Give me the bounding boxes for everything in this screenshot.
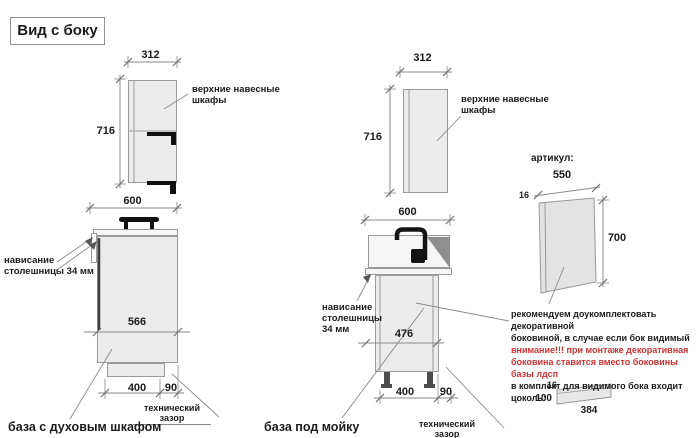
recommendation-text: рекомендуем доукомплектовать декоративно…	[511, 308, 700, 404]
decorative-side-panel	[539, 198, 596, 293]
oven-handle	[119, 217, 159, 229]
dim-depth-sink: 476	[379, 328, 429, 340]
dim-plinth-left: 400	[112, 382, 162, 394]
dim-panel-thickness: 16	[519, 190, 529, 200]
recommendation-line: боковиной, в случае если бок видимый	[511, 332, 700, 344]
dim-panel-width: 550	[542, 169, 582, 181]
dim-gap-mid: 90	[432, 386, 460, 398]
dim-base-width-mid: 600	[383, 206, 432, 218]
dim-depth-oven: 566	[112, 316, 162, 328]
tech-gap-label-right: технический зазор	[408, 419, 486, 438]
wall-cabinets-note-mid: верхние навесные шкафы	[461, 94, 551, 116]
view-title: Вид с боку	[10, 17, 105, 45]
article-label: артикул:	[531, 153, 574, 164]
overhang-note-left: нависание столешницы 34 мм	[4, 255, 96, 277]
countertop-mid	[365, 268, 452, 275]
dim-height-wall-mid: 716	[352, 131, 382, 143]
dim-panel-height: 700	[600, 232, 634, 244]
dim-width-wall-mid: 312	[398, 52, 447, 64]
side-view-drawing: Вид с боку 312 716 верхние навесные шкаф…	[0, 0, 700, 438]
dim-base-width-left: 600	[108, 195, 157, 207]
recommendation-line: рекомендуем доукомплектовать декоративно…	[511, 308, 700, 332]
dim-plinth-mid: 400	[380, 386, 430, 398]
dim-height-wall-left: 716	[85, 125, 115, 137]
recommendation-warning-line: боковина ставится вместо боковины базы л…	[511, 356, 700, 380]
dim-plinth-length: 384	[574, 405, 604, 416]
recommendation-warning-line: внимание!!! при монтаже декоративная	[511, 344, 700, 356]
wall-cabinets-note-left: верхние навесные шкафы	[192, 84, 282, 106]
dim-plinth-thickness: 16	[547, 380, 557, 390]
wall-cabinet-left	[128, 80, 177, 183]
countertop-left	[93, 229, 178, 236]
caption-base-oven: база с духовым шкафом	[8, 420, 161, 434]
dim-width-wall-left: 312	[126, 49, 175, 61]
base-oven-body	[97, 236, 178, 363]
panel-edge-line	[545, 203, 546, 293]
dim-plinth-height: 100	[530, 393, 552, 404]
overhang-note-mid: нависание столешницы 34 мм	[322, 302, 386, 335]
wall-cabinet-mid	[403, 89, 448, 193]
caption-base-sink: база под мойку	[264, 420, 359, 434]
sink-box	[368, 235, 450, 268]
base-oven-plinth	[107, 363, 165, 377]
dim-gap-left: 90	[157, 382, 185, 394]
